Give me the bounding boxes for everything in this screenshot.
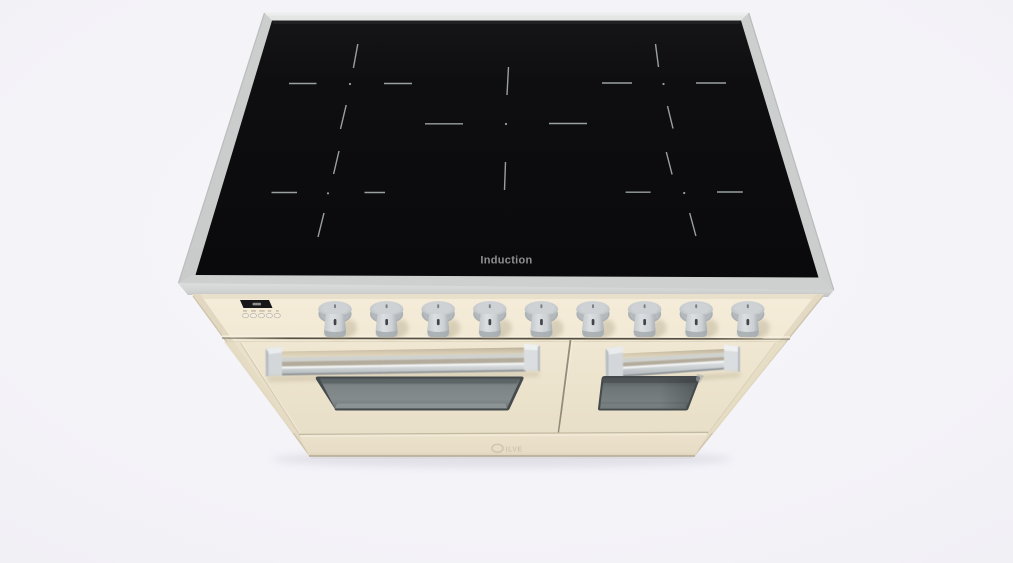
- svg-text:Induction: Induction: [480, 255, 532, 267]
- svg-text:ILVE: ILVE: [506, 446, 523, 453]
